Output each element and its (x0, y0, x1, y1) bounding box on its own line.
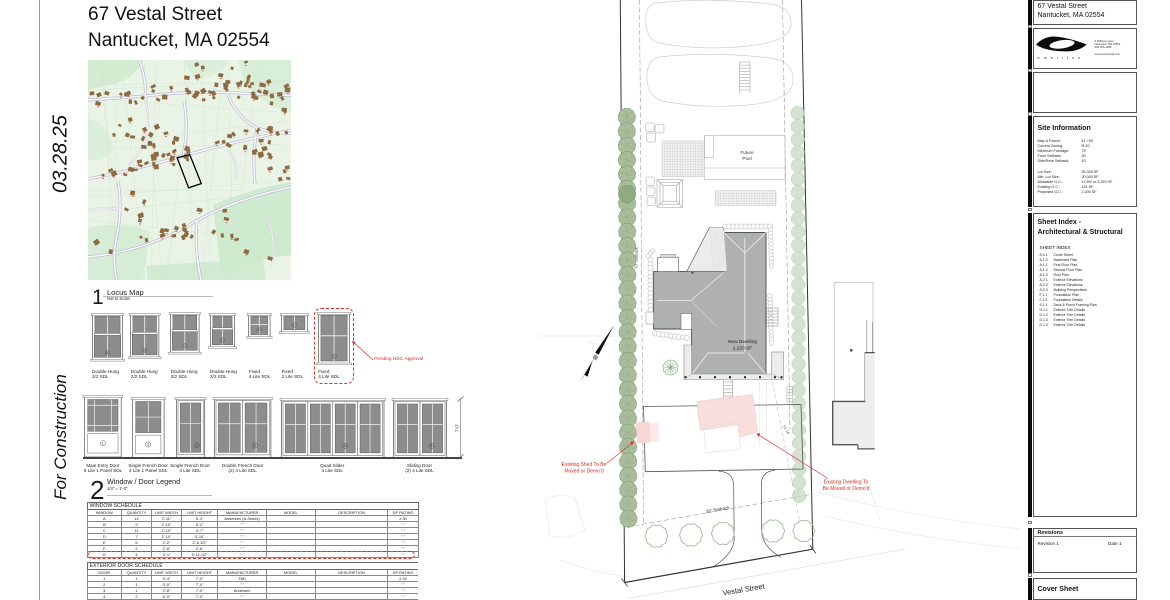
svg-text:4: 4 (254, 444, 256, 448)
svg-text:Moved or Demo'd: Moved or Demo'd (564, 469, 604, 475)
svg-text:7'-0": 7'-0" (455, 423, 460, 432)
svg-text:30' Setback: 30' Setback (706, 505, 731, 514)
svg-text:6: 6 (430, 444, 432, 448)
svg-text:New Dwelling: New Dwelling (728, 339, 757, 345)
svg-text:2: 2 (147, 442, 149, 446)
svg-text:Future: Future (740, 150, 754, 155)
svg-text:F: F (294, 324, 296, 328)
svg-text:Be Moved or Demo'd: Be Moved or Demo'd (823, 486, 870, 492)
svg-text:Existing Dwelling To: Existing Dwelling To (824, 480, 869, 486)
svg-text:1: 1 (102, 442, 104, 446)
svg-text:Pool: Pool (742, 156, 751, 161)
svg-text:Vestal Street: Vestal Street (722, 581, 766, 597)
svg-text:Existing Shed To Be: Existing Shed To Be (562, 462, 607, 468)
svg-text:3: 3 (195, 444, 197, 448)
svg-text:E: E (259, 329, 261, 333)
svg-text:5: 5 (344, 444, 346, 448)
svg-text:61.14': 61.14' (782, 425, 790, 436)
svg-text:B: B (144, 348, 146, 352)
svg-text:2,220 SF: 2,220 SF (733, 346, 753, 352)
